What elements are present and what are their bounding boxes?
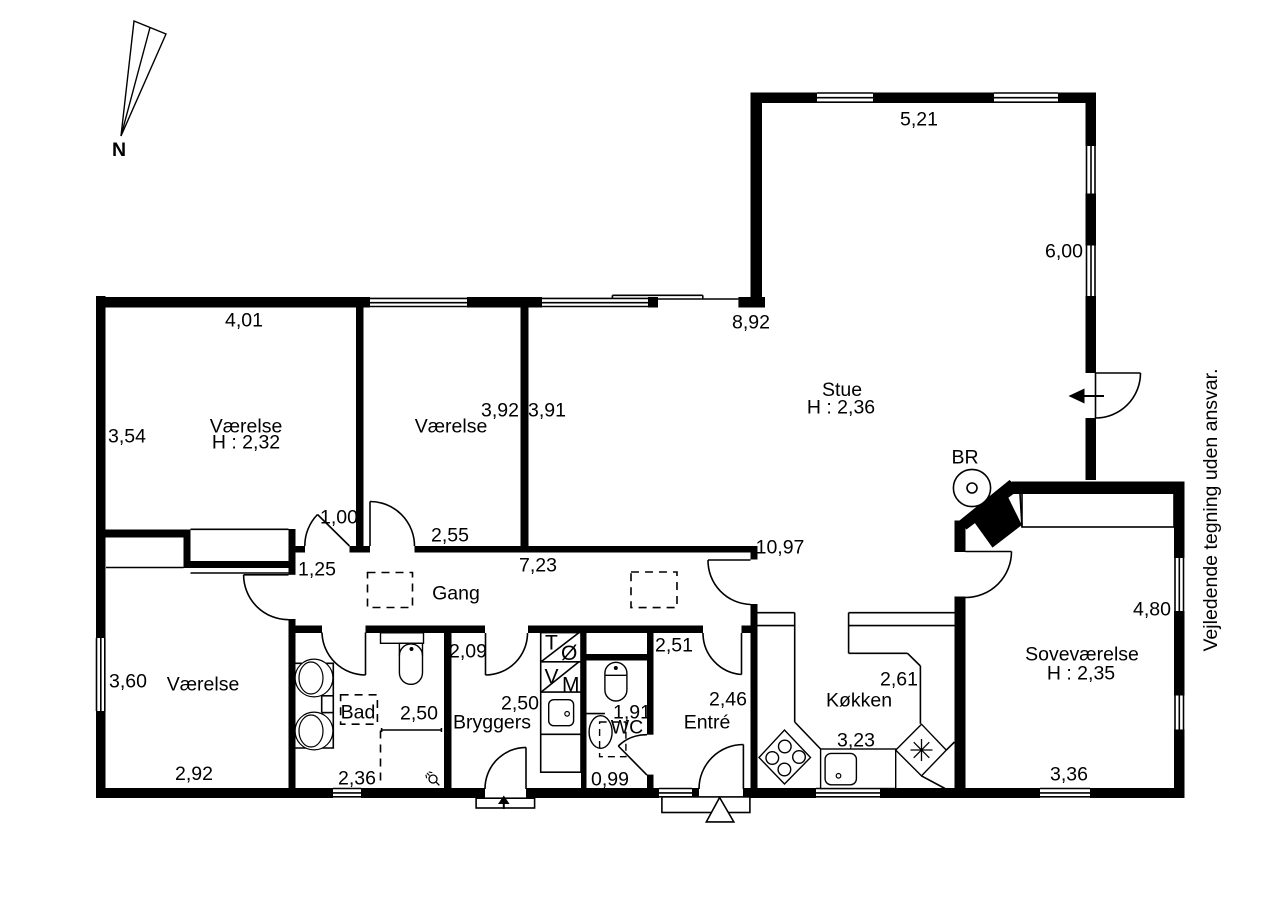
- svg-text:6,00: 6,00: [1045, 241, 1083, 263]
- svg-text:H : 2,32: H : 2,32: [212, 432, 280, 454]
- svg-text:3,23: 3,23: [837, 730, 875, 752]
- svg-text:Værelse: Værelse: [415, 416, 488, 438]
- svg-text:Ø: Ø: [561, 642, 577, 665]
- svg-text:H : 2,35: H : 2,35: [1047, 663, 1115, 685]
- svg-text:Entré: Entré: [684, 712, 731, 734]
- svg-text:WC: WC: [611, 717, 644, 739]
- svg-text:Værelse: Værelse: [167, 674, 240, 696]
- svg-text:V: V: [545, 666, 559, 689]
- svg-text:3,91: 3,91: [528, 400, 566, 422]
- svg-text:8,92: 8,92: [732, 312, 770, 334]
- svg-text:Bryggers: Bryggers: [453, 712, 531, 734]
- svg-text:Gang: Gang: [432, 583, 480, 605]
- svg-text:2,51: 2,51: [655, 635, 693, 657]
- svg-text:3,92: 3,92: [481, 400, 519, 422]
- svg-text:3,60: 3,60: [109, 671, 147, 693]
- svg-text:T: T: [545, 632, 558, 655]
- svg-text:10,97: 10,97: [756, 537, 805, 559]
- svg-text:H : 2,36: H : 2,36: [807, 397, 875, 419]
- svg-text:3,54: 3,54: [108, 426, 146, 448]
- svg-text:M: M: [562, 674, 580, 697]
- svg-text:2,61: 2,61: [880, 669, 918, 691]
- svg-text:5,21: 5,21: [900, 109, 938, 131]
- svg-text:2,50: 2,50: [400, 703, 438, 725]
- svg-text:2,46: 2,46: [709, 689, 747, 711]
- svg-text:0,99: 0,99: [591, 769, 629, 791]
- svg-text:2,09: 2,09: [449, 641, 487, 663]
- svg-text:2,55: 2,55: [431, 525, 469, 547]
- svg-text:3,36: 3,36: [1050, 764, 1088, 786]
- svg-text:2,36: 2,36: [338, 768, 376, 790]
- svg-text:Bad: Bad: [341, 702, 376, 724]
- svg-text:7,23: 7,23: [519, 555, 557, 577]
- svg-text:Vejledende tegning uden ansvar: Vejledende tegning uden ansvar.: [1200, 369, 1222, 652]
- svg-text:2,92: 2,92: [175, 763, 213, 785]
- svg-text:4,80: 4,80: [1133, 599, 1171, 621]
- svg-text:N: N: [112, 139, 126, 161]
- svg-text:4,01: 4,01: [225, 310, 263, 332]
- svg-text:BR: BR: [951, 447, 978, 469]
- svg-text:1,25: 1,25: [298, 559, 336, 581]
- svg-text:1,00: 1,00: [320, 507, 358, 529]
- svg-text:Køkken: Køkken: [826, 690, 892, 712]
